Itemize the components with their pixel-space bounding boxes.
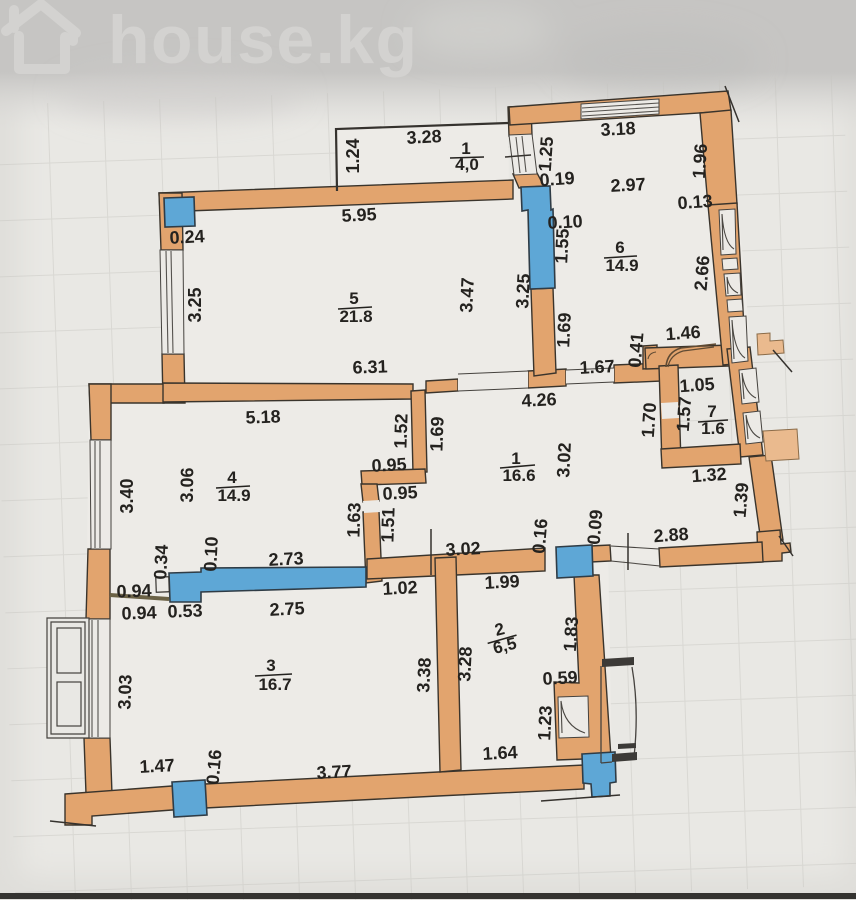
svg-text:0.10: 0.10 — [200, 536, 222, 572]
svg-text:2.73: 2.73 — [268, 548, 304, 570]
svg-text:1.24: 1.24 — [343, 138, 363, 173]
svg-text:1.67: 1.67 — [579, 356, 615, 378]
svg-text:1.96: 1.96 — [689, 143, 711, 179]
svg-text:3.02: 3.02 — [445, 538, 481, 560]
svg-text:1.69: 1.69 — [553, 312, 575, 348]
svg-text:0.41: 0.41 — [625, 332, 648, 369]
svg-text:0.34: 0.34 — [150, 544, 172, 580]
svg-text:0.59: 0.59 — [542, 667, 578, 689]
svg-text:1.23: 1.23 — [534, 705, 556, 741]
svg-text:1.55: 1.55 — [551, 228, 573, 264]
svg-text:3.25: 3.25 — [512, 273, 534, 309]
svg-text:0.16: 0.16 — [203, 749, 226, 786]
svg-text:1.83: 1.83 — [560, 616, 582, 652]
svg-text:house.kg: house.kg — [108, 2, 419, 78]
svg-text:3.28: 3.28 — [454, 646, 476, 682]
svg-text:1.52: 1.52 — [390, 413, 411, 449]
svg-text:3.18: 3.18 — [600, 118, 636, 140]
svg-text:3.47: 3.47 — [456, 277, 478, 313]
svg-text:2.75: 2.75 — [269, 598, 305, 620]
svg-text:3.40: 3.40 — [117, 478, 137, 513]
svg-text:14.9: 14.9 — [217, 486, 250, 505]
svg-text:1.57: 1.57 — [673, 396, 695, 432]
svg-text:3.28: 3.28 — [406, 126, 442, 148]
svg-text:0.16: 0.16 — [529, 518, 552, 555]
svg-text:0.24: 0.24 — [169, 226, 205, 248]
svg-text:5: 5 — [349, 289, 358, 308]
svg-text:1.02: 1.02 — [382, 577, 418, 599]
svg-text:3.03: 3.03 — [114, 674, 135, 710]
svg-text:0.53: 0.53 — [167, 600, 203, 621]
svg-text:2.88: 2.88 — [653, 524, 689, 546]
svg-text:4: 4 — [227, 468, 237, 487]
svg-text:1.25: 1.25 — [535, 136, 557, 172]
svg-text:0.13: 0.13 — [677, 191, 713, 213]
svg-text:3.06: 3.06 — [177, 467, 198, 502]
svg-text:3.38: 3.38 — [413, 657, 435, 693]
svg-text:5.95: 5.95 — [341, 204, 377, 226]
svg-text:0.94: 0.94 — [116, 580, 152, 601]
svg-text:14.9: 14.9 — [605, 256, 638, 275]
svg-text:1.64: 1.64 — [482, 742, 518, 764]
svg-text:0.19: 0.19 — [539, 168, 575, 190]
svg-text:21.8: 21.8 — [339, 307, 372, 326]
svg-text:1.32: 1.32 — [691, 464, 727, 486]
svg-text:0.94: 0.94 — [121, 602, 157, 623]
svg-text:0.95: 0.95 — [371, 454, 407, 476]
svg-text:3: 3 — [266, 656, 275, 675]
svg-text:1.47: 1.47 — [139, 755, 175, 777]
svg-text:1.99: 1.99 — [484, 571, 520, 593]
svg-text:1.39: 1.39 — [730, 482, 753, 519]
svg-text:6: 6 — [615, 238, 624, 257]
svg-text:1.70: 1.70 — [638, 402, 660, 438]
svg-text:6.31: 6.31 — [352, 356, 388, 377]
svg-text:16.7: 16.7 — [258, 675, 291, 694]
svg-text:1.46: 1.46 — [665, 322, 701, 344]
svg-text:3.77: 3.77 — [316, 761, 352, 783]
svg-text:3.25: 3.25 — [185, 287, 205, 322]
svg-text:1.51: 1.51 — [377, 507, 398, 543]
svg-text:3.02: 3.02 — [553, 442, 575, 478]
svg-text:1.63: 1.63 — [343, 502, 364, 538]
svg-text:0.95: 0.95 — [382, 482, 418, 504]
svg-text:4.26: 4.26 — [521, 389, 557, 411]
svg-text:2.66: 2.66 — [691, 255, 714, 292]
svg-text:5.18: 5.18 — [245, 406, 281, 427]
svg-text:2.97: 2.97 — [610, 174, 646, 196]
svg-text:1.69: 1.69 — [426, 416, 447, 452]
svg-text:1.05: 1.05 — [679, 374, 715, 396]
svg-text:0.09: 0.09 — [584, 509, 607, 546]
svg-text:16.6: 16.6 — [502, 466, 535, 485]
